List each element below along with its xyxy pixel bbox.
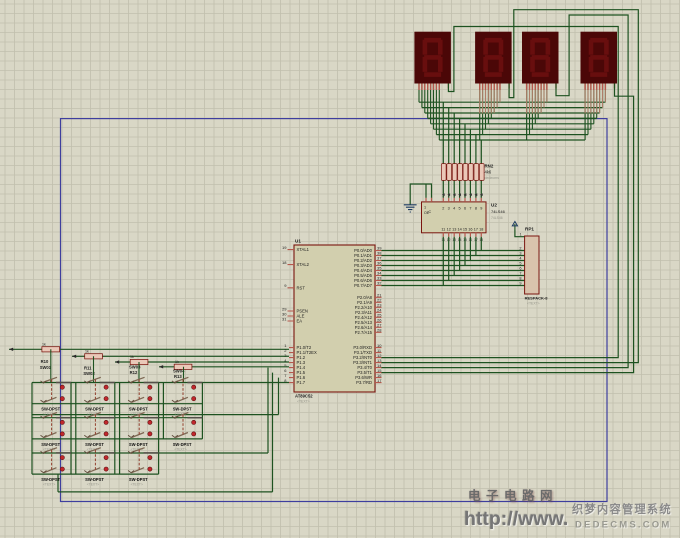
svg-text:4: 4: [519, 257, 521, 261]
svg-text:<TEXT>: <TEXT>: [43, 483, 55, 487]
svg-text:4: 4: [453, 194, 455, 198]
svg-text:4: 4: [453, 207, 455, 211]
svg-text:XTAL1: XTAL1: [297, 247, 310, 252]
svg-text:<TEXT>: <TEXT>: [174, 447, 186, 451]
svg-text:5: 5: [459, 194, 461, 198]
svg-text:P0.7/AD7: P0.7/AD7: [354, 283, 373, 288]
svg-text:SW-DPST: SW-DPST: [85, 407, 104, 412]
svg-text:P2.7/A15: P2.7/A15: [355, 330, 373, 335]
svg-text:7: 7: [519, 272, 521, 276]
svg-text:P3.7/RD: P3.7/RD: [356, 380, 372, 385]
svg-text:3: 3: [448, 207, 450, 211]
svg-text:18: 18: [282, 260, 287, 265]
svg-text:6: 6: [464, 207, 466, 211]
svg-text:<TEXT>: <TEXT>: [87, 483, 99, 487]
svg-text:19: 19: [282, 245, 287, 250]
svg-text:RP1: RP1: [525, 227, 534, 232]
svg-text:织梦内容管理系统: 织梦内容管理系统: [572, 502, 672, 516]
svg-text:8: 8: [475, 207, 477, 211]
svg-text:http://www.: http://www.: [464, 508, 568, 530]
svg-text:3: 3: [448, 194, 450, 198]
svg-text:R10: R10: [41, 359, 49, 364]
svg-text:13: 13: [452, 228, 456, 232]
svg-text:RST: RST: [297, 285, 306, 290]
svg-text:<TEXT>: <TEXT>: [131, 483, 143, 487]
svg-text:SW-DPST: SW-DPST: [85, 477, 104, 482]
svg-text:EA: EA: [297, 319, 303, 324]
svg-text:16: 16: [468, 228, 472, 232]
svg-text:1k: 1k: [175, 360, 179, 364]
svg-text:15: 15: [463, 228, 467, 232]
svg-text:SW-DPST: SW-DPST: [129, 442, 148, 447]
svg-text:SW-DPST: SW-DPST: [129, 477, 148, 482]
svg-text:14: 14: [457, 228, 461, 232]
svg-text:9: 9: [480, 207, 482, 211]
svg-text:11: 11: [441, 228, 445, 232]
svg-text:8: 8: [475, 194, 477, 198]
svg-text:SW01: SW01: [40, 365, 52, 370]
svg-text:1k: 1k: [130, 355, 134, 359]
svg-text:<TEXT>: <TEXT>: [527, 302, 540, 306]
svg-text:2: 2: [519, 247, 521, 251]
svg-text:2: 2: [442, 194, 444, 198]
svg-text:P1.7: P1.7: [297, 380, 306, 385]
svg-text:dedecms: dedecms: [485, 176, 500, 180]
svg-text:1: 1: [424, 206, 426, 210]
svg-text:8: 8: [519, 277, 521, 281]
svg-text:6: 6: [464, 194, 466, 198]
svg-text:C: C: [429, 210, 432, 214]
svg-text:74LS46: 74LS46: [491, 209, 506, 214]
svg-text:17: 17: [474, 228, 478, 232]
svg-text:5: 5: [519, 262, 521, 266]
svg-text:XTAL2: XTAL2: [297, 262, 310, 267]
svg-text:SW-DPST: SW-DPST: [85, 442, 104, 447]
svg-text:74LS46: 74LS46: [491, 216, 503, 220]
svg-text:DEDECMS.COM: DEDECMS.COM: [575, 520, 672, 531]
svg-text:R13: R13: [174, 374, 182, 379]
svg-text:U1: U1: [295, 239, 301, 244]
svg-text:6: 6: [519, 267, 521, 271]
svg-text:18: 18: [479, 228, 483, 232]
svg-text:AT89C52: AT89C52: [295, 394, 313, 399]
svg-text:5: 5: [459, 207, 461, 211]
svg-text:1k: 1k: [42, 343, 46, 347]
svg-text:<TEXT>: <TEXT>: [297, 400, 310, 404]
svg-text:3: 3: [519, 252, 521, 256]
svg-text:17: 17: [377, 378, 382, 383]
svg-text:U2: U2: [491, 203, 497, 208]
svg-text:电子电路网: 电子电路网: [468, 488, 558, 503]
svg-text:R11: R11: [84, 366, 92, 371]
svg-text:RESPACK-8: RESPACK-8: [525, 296, 549, 301]
svg-text:SW-DPST: SW-DPST: [41, 407, 60, 412]
svg-text:7: 7: [469, 207, 471, 211]
svg-text:SW-DPST: SW-DPST: [173, 407, 192, 412]
svg-text:R12: R12: [130, 370, 138, 375]
svg-text:7: 7: [469, 194, 471, 198]
svg-text:1k: 1k: [85, 350, 89, 354]
svg-text:SW-DPST: SW-DPST: [41, 442, 60, 447]
svg-text:2: 2: [442, 207, 444, 211]
svg-text:31: 31: [282, 316, 287, 321]
svg-text:SW-DPST: SW-DPST: [129, 407, 148, 412]
svg-text:32: 32: [377, 281, 382, 286]
svg-text:SW-DPST: SW-DPST: [41, 477, 60, 482]
svg-text:RN2: RN2: [485, 164, 494, 169]
svg-text:9: 9: [480, 194, 482, 198]
svg-text:1: 1: [520, 232, 522, 236]
svg-text:12: 12: [447, 228, 451, 232]
svg-text:4k6: 4k6: [485, 170, 492, 175]
svg-text:28: 28: [377, 328, 382, 333]
svg-text:9: 9: [519, 282, 521, 286]
svg-text:SW-DPST: SW-DPST: [173, 442, 192, 447]
